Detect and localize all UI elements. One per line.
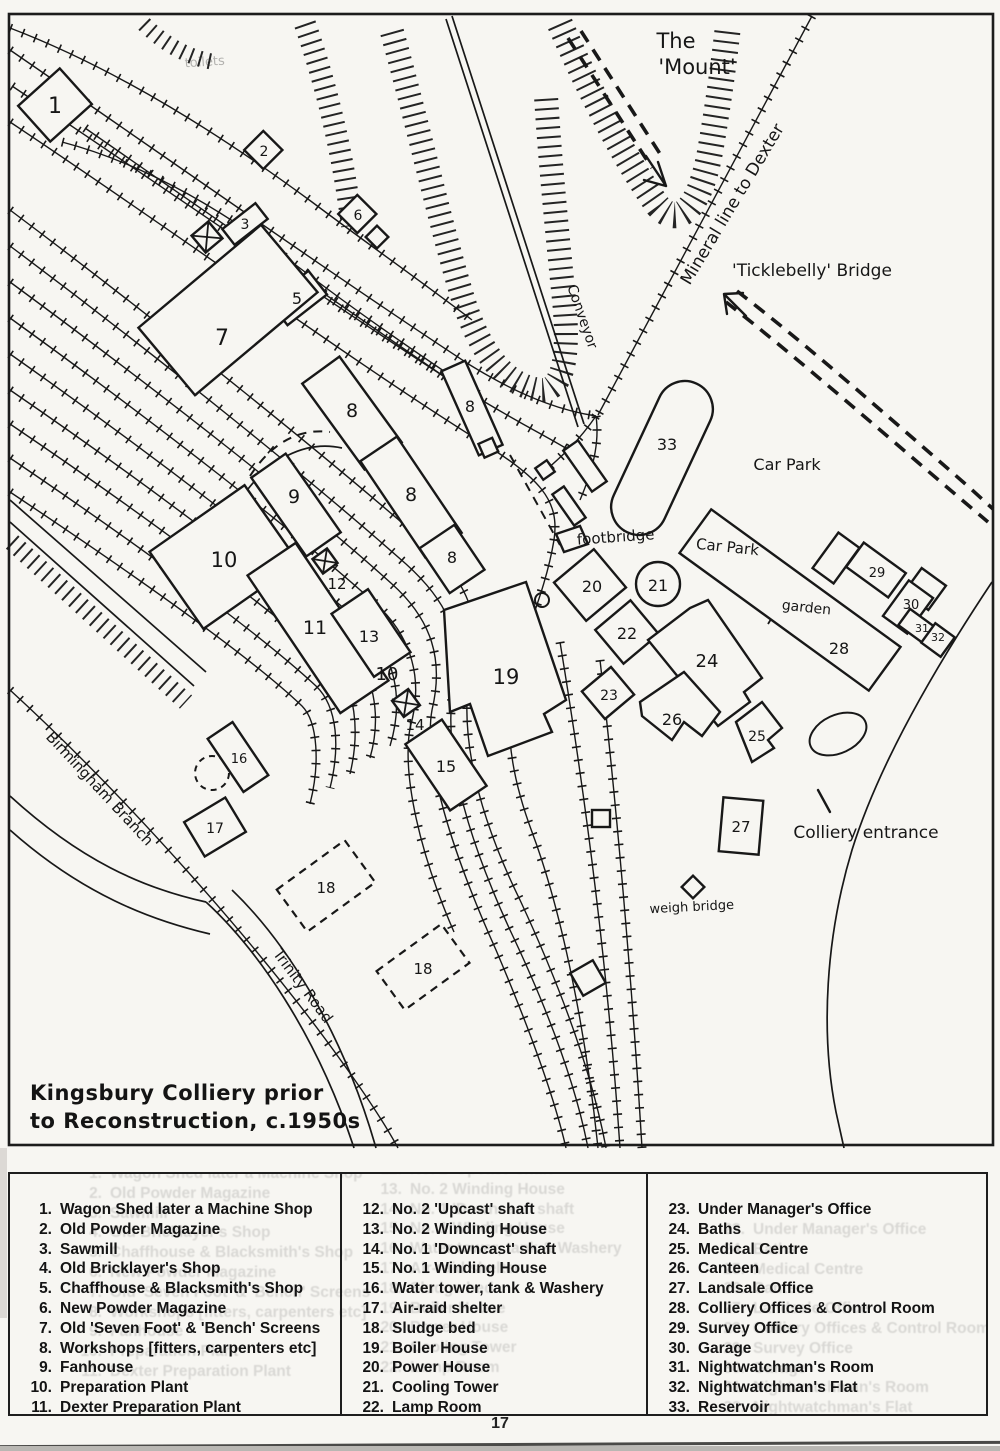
legend-item-text: Power House	[392, 1358, 490, 1378]
legend-item: 30.Garage	[660, 1339, 986, 1359]
page-number: 17	[470, 1415, 530, 1433]
ticklebelly-dismantled-line	[726, 302, 988, 522]
legend-item-number: 6.	[22, 1299, 52, 1319]
railway-tick-marks	[600, 660, 642, 1148]
legend-item-number: 30.	[660, 1339, 690, 1359]
legend-item-number: 2.	[22, 1220, 52, 1240]
legend-item-number: 11.	[22, 1398, 52, 1416]
legend-item-number: 12.	[372, 1172, 402, 1180]
legend-item-number: 29.	[660, 1319, 690, 1339]
footbridge-building-a	[563, 440, 606, 491]
legend-item-number: 21.	[354, 1378, 384, 1398]
legend-item: 21.Cooling Tower	[354, 1378, 646, 1398]
building-number-12: 12	[327, 575, 346, 593]
building-number-26: 26	[662, 710, 682, 729]
legend-item: 8.Workshops [fitters, carpenters etc]	[22, 1339, 340, 1359]
legend-item-text: Cooling Tower	[392, 1378, 498, 1398]
legend-item-text: Garage	[698, 1339, 751, 1359]
pond	[803, 704, 873, 764]
legend-item: 9.Fanhouse	[22, 1358, 340, 1378]
legend-item-text: Sawmill	[60, 1240, 118, 1260]
legend-item-text: Boiler House	[392, 1339, 488, 1359]
legend-item: 26.Canteen	[660, 1259, 986, 1279]
legend-item-text: Baths	[698, 1220, 741, 1240]
legend-item: 18.Sludge bed	[354, 1319, 646, 1339]
scan-artifact-band	[0, 1446, 1000, 1451]
legend-item: 28.Colliery Offices & Control Room	[660, 1299, 986, 1319]
legend-item-number: 20.	[354, 1358, 384, 1378]
legend-item-text: Reservoir	[698, 1398, 770, 1416]
legend-item-number: 33.	[660, 1398, 690, 1416]
legend-item: 29.Survey Office	[660, 1319, 986, 1339]
scanned-book-page: The'Mount'Mineral line to Dexter'Tickleb…	[0, 0, 1000, 1451]
legend-item: 12.No. 2 'Upcast' shaft	[354, 1200, 646, 1220]
legend-item: 25.Medical Centre	[660, 1240, 986, 1260]
building-number-31: 31	[915, 622, 929, 635]
legend-item: 24.Baths	[660, 1220, 986, 1240]
legend-item-number: 1.	[72, 1172, 102, 1184]
legend-item: 31.Nightwatchman's Room	[660, 1358, 986, 1378]
legend-item-text: Colliery Offices & Control Room	[698, 1299, 935, 1319]
legend-item-number: 22.	[354, 1398, 384, 1416]
conveyor-line	[452, 16, 584, 424]
legend-item-number: 13.	[354, 1220, 384, 1240]
building-number-1: 1	[48, 94, 62, 119]
legend-item-number: 10.	[22, 1378, 52, 1398]
building-number-29: 29	[869, 566, 886, 581]
legend-item-number: 24.	[660, 1220, 690, 1240]
legend-item-number: 26.	[660, 1259, 690, 1279]
building-number-8: 8	[405, 484, 417, 506]
building-number-8: 8	[346, 400, 358, 422]
legend-item-number: 7.	[22, 1319, 52, 1339]
map-label-the-mount-line2: 'Mount'	[658, 55, 735, 79]
building-number-30: 30	[903, 598, 920, 613]
legend-item-text: Medical Centre	[698, 1240, 808, 1260]
map-label-conveyor: Conveyor	[563, 283, 600, 352]
legend-item: 14.No. 1 'Downcast' shaft	[354, 1240, 646, 1260]
legend-item: 7.Old 'Seven Foot' & 'Bench' Screens	[22, 1319, 340, 1339]
building-number-15: 15	[436, 757, 456, 776]
legend-item-number: 13.	[372, 1180, 402, 1200]
legend-item: 13.No. 2 Winding House	[354, 1220, 646, 1240]
map-label-weigh-bridge: weigh bridge	[649, 898, 734, 917]
legend-item-number: 3.	[22, 1240, 52, 1260]
colliery-map: The'Mount'Mineral line to Dexter'Tickleb…	[0, 0, 1000, 1160]
building-number-10: 10	[211, 548, 238, 572]
legend-item-text: Nightwatchman's Flat	[698, 1378, 858, 1398]
legend-item-number: 27.	[660, 1279, 690, 1299]
legend-item: 33.Reservoir	[660, 1398, 986, 1416]
legend-column-2: 12.No. 2 'Upcast' shaft13.No. 2 Winding …	[342, 1174, 648, 1414]
map-title-line2: to Reconstruction, c.1950s	[30, 1109, 361, 1133]
legend-item-text: Water tower, tank & Washery	[392, 1279, 604, 1299]
building-number-19: 19	[493, 665, 520, 689]
legend-item: 22.Lamp Room	[354, 1398, 646, 1416]
building-number-5: 5	[292, 289, 302, 308]
legend-item-number: 14.	[354, 1240, 384, 1260]
legend-item-number: 4.	[22, 1259, 52, 1279]
building-number-6: 6	[354, 208, 363, 224]
legend-item-text: No. 2 'Upcast' shaft	[410, 1172, 553, 1180]
building-number-3: 3	[241, 217, 250, 233]
legend-item-text: Wagon Shed later a Machine Shop	[110, 1172, 363, 1184]
legend-item-number: 1.	[22, 1200, 52, 1220]
legend-item: 27.Landsale Office	[660, 1279, 986, 1299]
building-number-21: 21	[648, 576, 668, 595]
legend-item-text: Workshops [fitters, carpenters etc]	[60, 1339, 316, 1359]
legend-item: 23.Under Manager's Office	[660, 1200, 986, 1220]
building-number-17: 17	[206, 821, 224, 837]
building-number-9: 9	[288, 486, 300, 508]
mount-arrow	[644, 156, 666, 186]
legend-item-text: Preparation Plant	[60, 1378, 188, 1398]
legend-item-text: Nightwatchman's Room	[698, 1358, 874, 1378]
building-number-23: 23	[600, 688, 618, 704]
building-number-18: 18	[413, 960, 432, 978]
railway-tick-marks	[560, 642, 620, 1148]
legend-item-text: Wagon Shed later a Machine Shop	[60, 1200, 313, 1220]
map-label-footbridge: footbridge	[576, 525, 655, 548]
legend-item-number: 9.	[22, 1358, 52, 1378]
legend-item-text: Fanhouse	[60, 1358, 133, 1378]
building-number-22: 22	[617, 624, 637, 643]
legend-item-text: Old Powder Magazine	[60, 1220, 220, 1240]
legend-item-number: 28.	[660, 1299, 690, 1319]
weigh-bridge-hut	[682, 876, 705, 899]
legend-item-number: 8.	[22, 1339, 52, 1359]
legend-item: 1.Wagon Shed later a Machine Shop	[72, 1172, 370, 1184]
legend-item: 16.Water tower, tank & Washery	[354, 1279, 646, 1299]
building-number-10: 10	[376, 664, 399, 685]
map-title-line1: Kingsbury Colliery prior	[30, 1081, 324, 1105]
map-label-colliery-entrance: Colliery entrance	[793, 823, 938, 843]
legend-item-number: 16.	[354, 1279, 384, 1299]
building-number-16: 16	[231, 752, 248, 767]
buildings	[18, 68, 955, 1009]
building-number-27: 27	[731, 818, 750, 836]
building-number-8: 8	[465, 397, 475, 416]
building-number-33: 33	[657, 435, 677, 454]
building-number-32: 32	[931, 631, 945, 644]
legend-item: 12.No. 2 'Upcast' shaft	[372, 1172, 622, 1180]
map-label-ticklebelly-bridge: 'Ticklebelly' Bridge	[732, 261, 892, 281]
building-number-7: 7	[215, 326, 229, 351]
legend-item: 13.No. 2 Winding House	[372, 1180, 622, 1200]
legend-item-text: No. 2 'Upcast' shaft	[392, 1200, 535, 1220]
map-label-car-park-upper: Car Park	[753, 455, 821, 474]
legend-item-text: Landsale Office	[698, 1279, 813, 1299]
building-number-8: 8	[447, 548, 457, 567]
legend-item-number: 32.	[660, 1378, 690, 1398]
legend-item: 32.Nightwatchman's Flat	[660, 1378, 986, 1398]
map-label-trinity-road: Trinity Road	[269, 945, 337, 1027]
legend-item-text: No. 2 Winding House	[410, 1180, 565, 1200]
building-number-25: 25	[748, 729, 766, 745]
legend-item-number: 31.	[660, 1358, 690, 1378]
legend-item-text: Canteen	[698, 1259, 759, 1279]
legend-item-number: 15.	[354, 1259, 384, 1279]
legend-item: 17.Air-raid shelter	[354, 1299, 646, 1319]
legend-item-number: 12.	[354, 1200, 384, 1220]
legend-item-text: Air-raid shelter	[392, 1299, 502, 1319]
legend-item-text: Lamp Room	[392, 1398, 482, 1416]
legend-item: 2.Old Powder Magazine	[22, 1220, 340, 1240]
legend-item: 4.Old Bricklayer's Shop	[22, 1259, 340, 1279]
building-number-20: 20	[582, 577, 602, 596]
legend-item: 20.Power House	[354, 1358, 646, 1378]
legend-item: 10.Preparation Plant	[22, 1378, 340, 1398]
legend-item-number: 19.	[354, 1339, 384, 1359]
legend-item-number: 5.	[22, 1279, 52, 1299]
legend-item-text: New Powder Magazine	[60, 1299, 226, 1319]
legend-item-text: No. 1 Winding House	[392, 1259, 547, 1279]
building-number-18: 18	[316, 879, 335, 897]
legend-item-text: No. 1 'Downcast' shaft	[392, 1240, 556, 1260]
legend-column-3: 23.Under Manager's Office24.Baths25.Medi…	[648, 1174, 986, 1414]
building-number-14: 14	[405, 716, 424, 734]
legend-item: 19.Boiler House	[354, 1339, 646, 1359]
legend-item-text: Dexter Preparation Plant	[60, 1398, 241, 1416]
building-number-24: 24	[696, 651, 719, 672]
roads-and-boundaries	[10, 16, 992, 1148]
legend-item: 1.Wagon Shed later a Machine Shop	[22, 1200, 340, 1220]
scan-artifact-edge	[0, 1148, 7, 1318]
map-key: 1.Wagon Shed later a Machine Shop2.Old P…	[8, 1172, 988, 1416]
building-number-13: 13	[359, 627, 379, 646]
legend-item-number: 23.	[660, 1200, 690, 1220]
signal-hut	[592, 810, 610, 827]
legend-item: 15.No. 1 Winding House	[354, 1259, 646, 1279]
legend-item: 11.Dexter Preparation Plant	[22, 1398, 340, 1416]
legend-item-text: No. 2 Winding House	[392, 1220, 547, 1240]
legend-item-text: Chaffhouse & Blacksmith's Shop	[60, 1279, 303, 1299]
map-label-birmingham-branch: Birmingham Branch	[42, 728, 157, 849]
legend-item-number: 17.	[354, 1299, 384, 1319]
legend-item-text: Old 'Seven Foot' & 'Bench' Screens	[60, 1319, 320, 1339]
legend-item-number: 25.	[660, 1240, 690, 1260]
legend-item-text: Old Bricklayer's Shop	[60, 1259, 220, 1279]
legend-item-number: 18.	[354, 1319, 384, 1339]
map-label-toilets: toilets	[184, 54, 225, 72]
legend-item: 5.Chaffhouse & Blacksmith's Shop	[22, 1279, 340, 1299]
legend-item: 6.New Powder Magazine	[22, 1299, 340, 1319]
legend-item-text: Under Manager's Office	[698, 1200, 871, 1220]
building-number-2: 2	[260, 144, 269, 160]
building-number-11: 11	[303, 617, 327, 639]
legend-item-text: Survey Office	[698, 1319, 798, 1339]
map-label-the-mount-line1: The	[655, 29, 695, 53]
building-number-28: 28	[829, 639, 849, 658]
railway-tick-marks	[10, 50, 596, 416]
legend-column-1: 1.Wagon Shed later a Machine Shop2.Old P…	[10, 1174, 342, 1414]
legend-item-text: Sludge bed	[392, 1319, 476, 1339]
legend-item: 3.Sawmill	[22, 1240, 340, 1260]
